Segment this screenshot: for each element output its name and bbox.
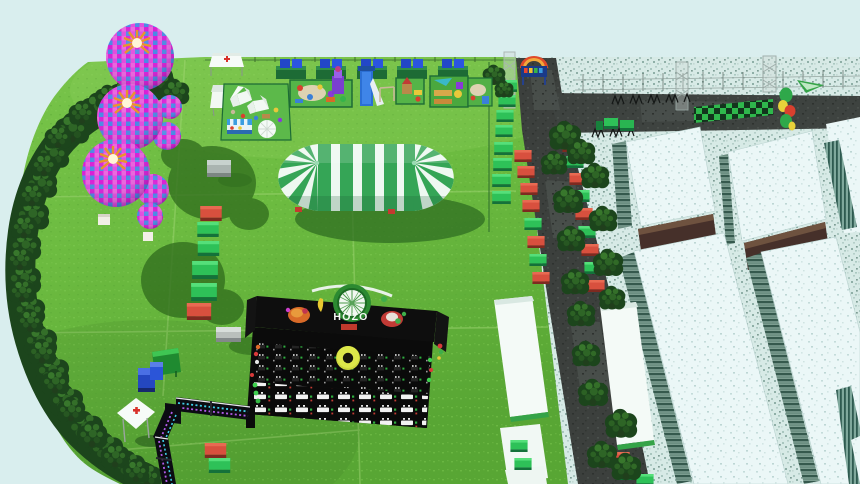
svg-text:HOZO: HOZO: [333, 311, 368, 323]
